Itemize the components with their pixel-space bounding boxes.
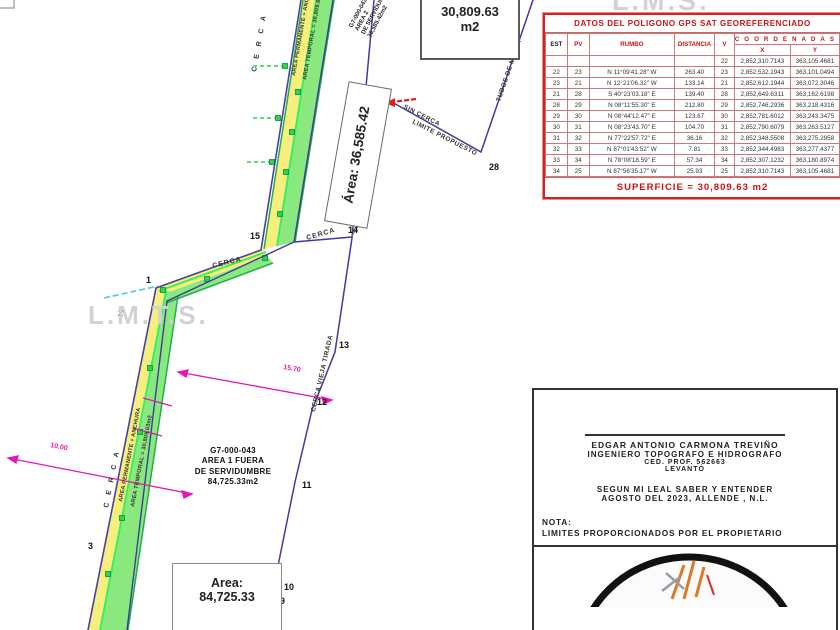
table-cell: 21 bbox=[567, 78, 589, 89]
legal-statement-line: AGOSTO DEL 2023, ALLENDE , N.L. bbox=[534, 494, 836, 503]
bottom-area-label: Area: bbox=[173, 576, 281, 590]
table-cell: N 78°08'18.59" E bbox=[589, 155, 674, 166]
table-cell: 23 bbox=[567, 67, 589, 78]
table-row: 3425N 87°56'35.17" W25.93252,852,310.714… bbox=[546, 166, 840, 177]
table-cell: N 08°44'12.47" E bbox=[589, 111, 674, 122]
table-cell: 25 bbox=[567, 166, 589, 177]
table-cell: 2,852,307.1232 bbox=[734, 155, 790, 166]
table-cell: 133.14 bbox=[675, 78, 715, 89]
table-cell: 139.40 bbox=[675, 89, 715, 100]
col-header-x: X bbox=[734, 45, 790, 56]
table-cell bbox=[675, 56, 715, 67]
table-cell bbox=[589, 56, 674, 67]
table-cell: 2,852,649.6311 bbox=[734, 89, 790, 100]
table-cell: 29 bbox=[567, 100, 589, 111]
surveyor-name-block: EDGAR ANTONIO CARMONA TREVIÑOINGENIERO T… bbox=[534, 440, 836, 473]
signature-line bbox=[585, 434, 785, 436]
table-cell: 22 bbox=[546, 67, 568, 78]
table-cell: 57.34 bbox=[675, 155, 715, 166]
table-cell: 2,852,344.4983 bbox=[734, 144, 790, 155]
parcel-label-line: AREA 1 FUERA bbox=[202, 456, 264, 465]
vertex-marker bbox=[106, 572, 111, 577]
legal-statement-block: SEGUN MI LEAL SABER Y ENTENDERAGOSTO DEL… bbox=[534, 485, 836, 503]
table-cell: 33 bbox=[546, 155, 568, 166]
table-cell: 29 bbox=[546, 111, 568, 122]
vertex-marker bbox=[161, 288, 166, 293]
table-row: 3031N 08°23'43.70" E104.70312,852,790.60… bbox=[546, 122, 840, 133]
table-cell: 363,263.5127 bbox=[790, 122, 839, 133]
vertex-marker bbox=[283, 64, 288, 69]
table-row: 3233N 87°01'43.52" W7.81332,852,344.4983… bbox=[546, 144, 840, 155]
table-cell: 263.40 bbox=[675, 67, 715, 78]
table-cell: 33 bbox=[714, 144, 734, 155]
table-cell: N 12°21'06.32" W bbox=[589, 78, 674, 89]
table-cell: 36.16 bbox=[675, 133, 715, 144]
parcel-label-line: G7-000-043 bbox=[210, 446, 256, 455]
point-number-label: 15 bbox=[250, 231, 260, 241]
bottom-area-callout: Area: 84,725.33 bbox=[172, 563, 282, 630]
point-number-label: 28 bbox=[489, 162, 499, 172]
point-number-label: 13 bbox=[339, 340, 349, 350]
table-cell: 2,852,612.1944 bbox=[734, 78, 790, 89]
strip-area-callout: 30,809.63 m2 bbox=[420, 0, 520, 60]
table-cell: 363,105.4681 bbox=[790, 166, 839, 177]
table-cell: 212.80 bbox=[675, 100, 715, 111]
table-cell: 104.70 bbox=[675, 122, 715, 133]
table-title: DATOS DEL POLIGONO GPS SAT GEOREFERENCIA… bbox=[545, 15, 840, 33]
table-row: 2829N 08°11'55.30" E212.80292,852,746.29… bbox=[546, 100, 840, 111]
watermark-lmts: L.M.T.S. bbox=[88, 300, 209, 331]
table-row: 3132N 77°22'57.72" E36.16322,852,348.550… bbox=[546, 133, 840, 144]
vertex-marker bbox=[278, 212, 283, 217]
point-number-label: 1 bbox=[146, 275, 151, 285]
strip-area-unit: m2 bbox=[422, 19, 518, 34]
rotated-area-value: Área: 36,585.42 bbox=[341, 105, 373, 204]
table-cell: 23 bbox=[546, 78, 568, 89]
table-cell: 363,072.3046 bbox=[790, 78, 839, 89]
table-cell: N 08°23'43.70" E bbox=[589, 122, 674, 133]
surveyor-logo bbox=[534, 547, 836, 607]
certificate-line: EDGAR ANTONIO CARMONA TREVIÑO bbox=[534, 440, 836, 450]
table-cell: 2,852,310.7143 bbox=[734, 166, 790, 177]
table-cell bbox=[567, 56, 589, 67]
table-cell: 7.81 bbox=[675, 144, 715, 155]
nota-block: NOTA:LIMITES PROPORCIONADOS POR EL PROPI… bbox=[542, 517, 836, 539]
table-cell: 29 bbox=[714, 100, 734, 111]
table-cell: 22 bbox=[714, 56, 734, 67]
table-cell: 2,852,348.5508 bbox=[734, 133, 790, 144]
col-header-distancia: DISTANCIA bbox=[675, 34, 715, 56]
table-cell: 31 bbox=[714, 122, 734, 133]
bottom-area-value: 84,725.33 bbox=[173, 590, 281, 604]
table-cell: 363,218.4316 bbox=[790, 100, 839, 111]
nota-line: LIMITES PROPORCIONADOS POR EL PROPIETARI… bbox=[542, 528, 836, 539]
legal-statement-line: SEGUN MI LEAL SABER Y ENTENDER bbox=[534, 485, 836, 494]
parcel-label-line: 84,725.33m2 bbox=[208, 477, 258, 486]
table-cell: 21 bbox=[546, 89, 568, 100]
col-header-y: Y bbox=[790, 45, 839, 56]
table-cell: 34 bbox=[546, 166, 568, 177]
table-row: 2930N 08°44'12.47" E123.67302,852,781.60… bbox=[546, 111, 840, 122]
table-cell: 23 bbox=[714, 67, 734, 78]
table-cell: 32 bbox=[714, 133, 734, 144]
table-cell: 2,852,746.2936 bbox=[734, 100, 790, 111]
table-cell: 28 bbox=[567, 89, 589, 100]
table-cell: N 08°11'55.30" E bbox=[589, 100, 674, 111]
table-cell: 2,852,781.6012 bbox=[734, 111, 790, 122]
sheet-corner-tick bbox=[0, 0, 14, 8]
table-cell: 34 bbox=[714, 155, 734, 166]
logo-section bbox=[534, 545, 836, 607]
vertex-marker bbox=[148, 366, 153, 371]
parcel-label: G7-000-043AREA 1 FUERADE SERVIDUMBRE84,7… bbox=[163, 446, 303, 488]
vertex-marker bbox=[270, 160, 275, 165]
table-row: 222,852,310.7143363,105.4681 bbox=[546, 56, 840, 67]
table-cell: 31 bbox=[567, 122, 589, 133]
table-cell: 34 bbox=[567, 155, 589, 166]
survey-plan-canvas: L.M.S. L.M.T.S. bbox=[0, 0, 840, 630]
table-cell: S 40°23'03.18" E bbox=[589, 89, 674, 100]
certificate-line: LEVANTÓ bbox=[534, 466, 836, 473]
table-cell: 32 bbox=[567, 133, 589, 144]
tie-line-cyan bbox=[104, 286, 158, 298]
point-number-label: 10 bbox=[284, 582, 294, 592]
vertex-marker bbox=[284, 170, 289, 175]
vertex-marker bbox=[290, 130, 295, 135]
table-row: 3334N 78°08'18.59" E57.34342,852,307.123… bbox=[546, 155, 840, 166]
col-header-coordenadas: COORDENADAS bbox=[734, 34, 839, 45]
surveyor-certificate: EDGAR ANTONIO CARMONA TREVIÑOINGENIERO T… bbox=[532, 388, 838, 630]
table-cell: 30 bbox=[546, 122, 568, 133]
table-cell: 2,852,310.7143 bbox=[734, 56, 790, 67]
table-cell: 363,275.2958 bbox=[790, 133, 839, 144]
col-header-pv: PV bbox=[567, 34, 589, 56]
table-cell: 21 bbox=[714, 78, 734, 89]
certificate-line: CED. PROF. 562663 bbox=[534, 459, 836, 466]
table-cell: 363,277.4377 bbox=[790, 144, 839, 155]
line-text-label: LIMITE PROPUESTO bbox=[411, 119, 478, 158]
col-header-est: EST bbox=[546, 34, 568, 56]
point-number-label: 11 bbox=[302, 480, 312, 490]
vertex-marker bbox=[276, 116, 281, 121]
polygon-data-table: DATOS DEL POLIGONO GPS SAT GEOREFERENCIA… bbox=[543, 13, 840, 199]
table-cell: N 87°01'43.52" W bbox=[589, 144, 674, 155]
table-cell: 31 bbox=[546, 133, 568, 144]
nota-line: NOTA: bbox=[542, 517, 836, 528]
dimension-label: 10.00 bbox=[50, 442, 69, 452]
certificate-line: INGENIERO TOPOGRAFO E HIDROGRAFO bbox=[534, 450, 836, 459]
table-cell: 363,101.0494 bbox=[790, 67, 839, 78]
table-cell: 33 bbox=[567, 144, 589, 155]
superficie-total: SUPERFICIE = 30,809.63 m2 bbox=[545, 177, 840, 197]
vertex-marker bbox=[205, 277, 210, 282]
table-cell: 30 bbox=[714, 111, 734, 122]
parcel-label-line: DE SERVIDUMBRE bbox=[195, 467, 272, 476]
vertex-marker bbox=[120, 516, 125, 521]
table-cell: 28 bbox=[546, 100, 568, 111]
table-cell: 363,243.3475 bbox=[790, 111, 839, 122]
table-cell: 30 bbox=[567, 111, 589, 122]
table-cell: 32 bbox=[546, 144, 568, 155]
table-cell bbox=[546, 56, 568, 67]
table-cell: 363,162.6198 bbox=[790, 89, 839, 100]
table-cell: 28 bbox=[714, 89, 734, 100]
table-row: 2128S 40°23'03.18" E139.40282,852,649.63… bbox=[546, 89, 840, 100]
col-header-v: V bbox=[714, 34, 734, 56]
table-cell: 123.67 bbox=[675, 111, 715, 122]
table-row: 2321N 12°21'06.32" W133.14212,852,612.19… bbox=[546, 78, 840, 89]
table-cell: N 77°22'57.72" E bbox=[589, 133, 674, 144]
dimension-label: 15.70 bbox=[283, 364, 302, 374]
strip-area-value: 30,809.63 bbox=[422, 4, 518, 19]
table-cell: 25 bbox=[714, 166, 734, 177]
table-row: 2223N 11°09'41.28" W263.40232,852,532.19… bbox=[546, 67, 840, 78]
col-header-rumbo: RUMBO bbox=[589, 34, 674, 56]
vertex-marker bbox=[296, 90, 301, 95]
table-cell: 363,105.4681 bbox=[790, 56, 839, 67]
point-number-label: 3 bbox=[88, 541, 93, 551]
table-cell: N 87°56'35.17" W bbox=[589, 166, 674, 177]
table-cell: 2,852,790.6079 bbox=[734, 122, 790, 133]
table-cell: 2,852,532.1943 bbox=[734, 67, 790, 78]
table-cell: 363,180.8974 bbox=[790, 155, 839, 166]
table-cell: N 11°09'41.28" W bbox=[589, 67, 674, 78]
table-cell: 25.93 bbox=[675, 166, 715, 177]
line-text-label: C E R C A bbox=[251, 13, 268, 73]
